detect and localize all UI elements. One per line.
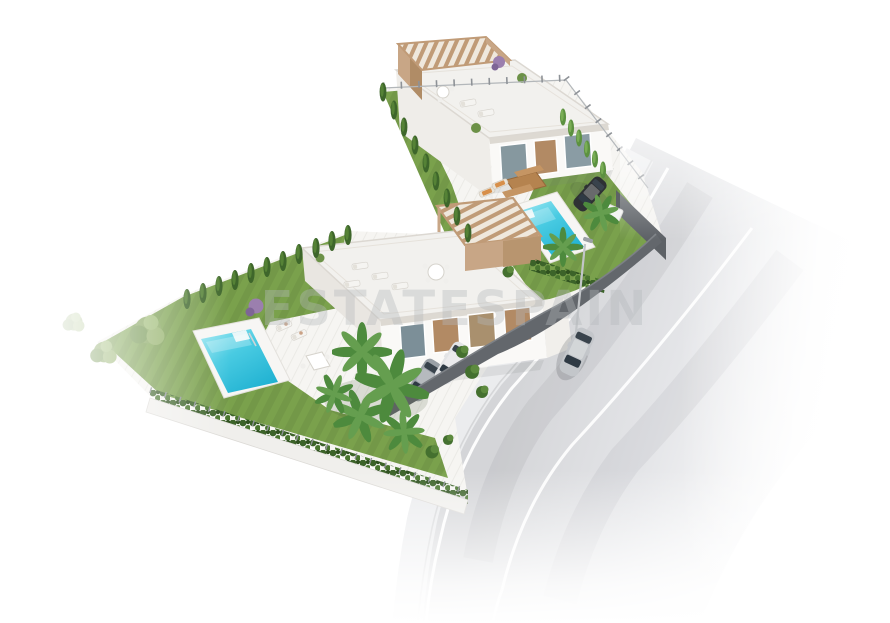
patio-chair bbox=[324, 354, 329, 359]
flower-pot-purple bbox=[492, 64, 499, 71]
terrace-chair bbox=[438, 98, 443, 103]
terrace-table bbox=[428, 264, 444, 280]
scene-svg: ESTATESPAIN bbox=[0, 0, 890, 623]
patio-chair bbox=[300, 363, 305, 368]
terrace-table bbox=[437, 86, 449, 98]
fade-top-right bbox=[620, 60, 890, 240]
terrace-chair bbox=[422, 263, 427, 268]
render-canvas: ESTATESPAIN bbox=[0, 0, 890, 623]
plant-pot bbox=[471, 123, 481, 133]
purple-bush bbox=[246, 308, 255, 317]
watermark-text: ESTATESPAIN bbox=[261, 281, 650, 337]
terrace-chair bbox=[450, 87, 455, 92]
terrace-chair bbox=[444, 264, 449, 269]
fade-left bbox=[0, 260, 230, 623]
